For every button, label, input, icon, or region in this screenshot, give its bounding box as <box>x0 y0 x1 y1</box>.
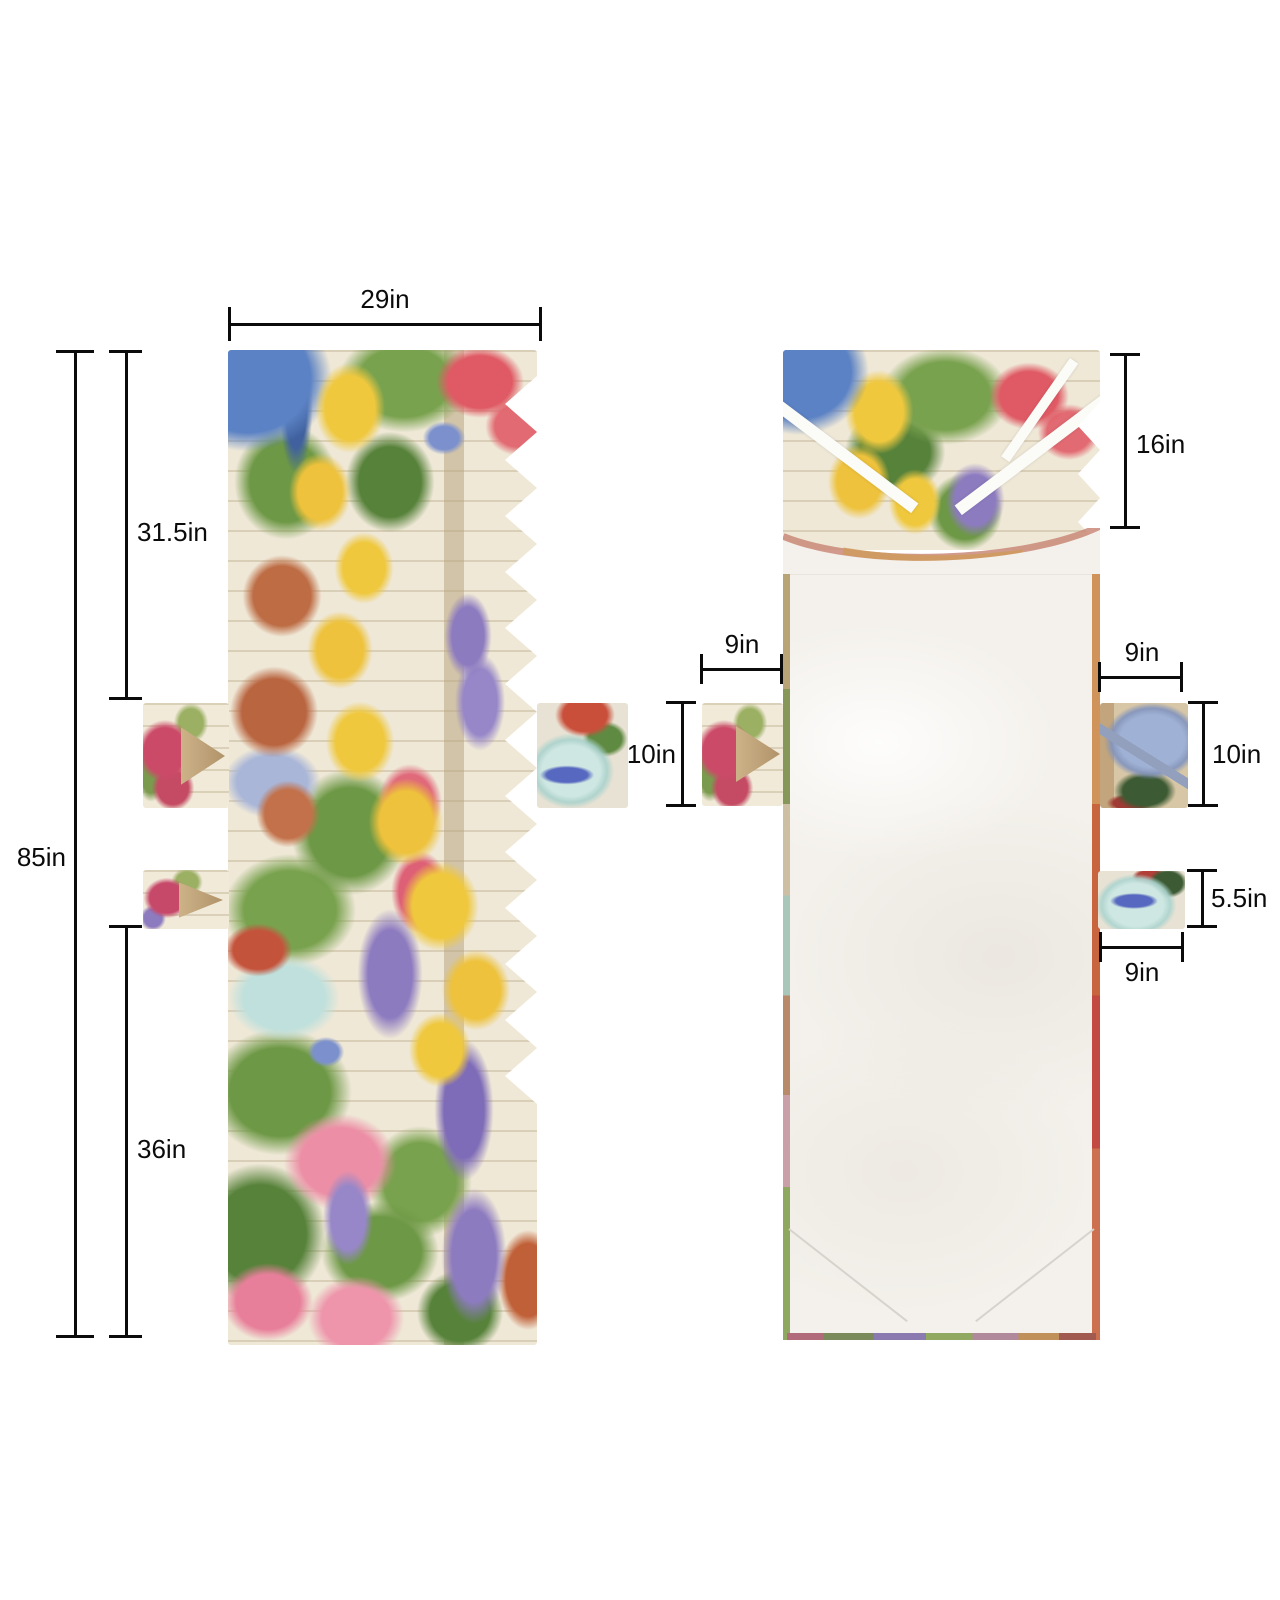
dim-line <box>1201 871 1204 928</box>
dim-tick <box>109 1335 142 1338</box>
dim-line <box>125 927 128 1338</box>
dim-line <box>230 323 540 326</box>
dim-label: 9in <box>1082 958 1202 987</box>
corner-seam <box>788 1228 907 1322</box>
front-cover-panel <box>228 350 537 1345</box>
dim-tick <box>56 1335 94 1338</box>
front-left-upper-pocket <box>143 703 229 808</box>
dim-tick <box>109 697 142 700</box>
back-top-print-section <box>783 350 1100 550</box>
picket-icon <box>736 719 780 789</box>
dim-tick <box>228 307 231 341</box>
fence-picket-zigzag-edge <box>499 376 537 1104</box>
dim-label: 16in <box>1136 430 1185 459</box>
print-edge-left <box>783 574 790 1340</box>
back-left-pocket <box>702 703 783 806</box>
dim-tick <box>700 654 703 684</box>
dim-tick <box>1180 662 1183 692</box>
dim-tick <box>1110 526 1140 529</box>
print-edge-bottom <box>787 1333 1096 1340</box>
dim-line <box>74 352 77 1338</box>
dim-tick <box>1098 662 1101 692</box>
dim-label: 10in <box>592 740 676 769</box>
dim-label: 29in <box>230 285 540 314</box>
picket-icon <box>179 878 223 922</box>
dim-tick <box>109 350 142 353</box>
dim-line <box>702 668 783 671</box>
dim-tick <box>1188 804 1218 807</box>
dim-label: 10in <box>1212 740 1261 769</box>
back-white-sheet <box>783 574 1100 1340</box>
dim-tick <box>1188 701 1218 704</box>
dim-tick <box>666 701 696 704</box>
back-right-upper-pocket <box>1100 703 1188 808</box>
dim-tick <box>109 925 142 928</box>
corner-strap <box>783 395 918 513</box>
dim-tick <box>1181 932 1184 962</box>
dim-label: 31.5in <box>137 518 208 547</box>
dim-label: 85in <box>8 843 66 872</box>
dim-line <box>681 703 684 807</box>
dim-tick <box>56 350 94 353</box>
fence-picket-zigzag-edge <box>1070 402 1100 546</box>
back-cover-panel <box>783 350 1100 1340</box>
dim-tick <box>539 307 542 341</box>
dim-tick <box>1099 932 1102 962</box>
dim-line <box>1100 676 1183 679</box>
picket-icon <box>181 720 225 792</box>
dim-line <box>1124 355 1127 529</box>
dim-label: 5.5in <box>1211 884 1267 913</box>
dim-label: 36in <box>137 1135 186 1164</box>
corner-seam <box>975 1228 1094 1322</box>
opening-curve <box>783 528 1100 580</box>
size-chart-page: { "dims": { "front_width": "29in", "fron… <box>0 0 1280 1600</box>
dim-line <box>1202 703 1205 807</box>
back-right-lower-pocket <box>1098 871 1185 929</box>
dim-tick <box>780 654 783 684</box>
dim-tick <box>1187 869 1217 872</box>
dim-tick <box>1187 925 1217 928</box>
dim-tick <box>666 804 696 807</box>
dim-tick <box>1110 353 1140 356</box>
front-left-lower-pocket <box>143 870 229 929</box>
dim-line <box>1101 946 1183 949</box>
dim-line <box>125 352 128 700</box>
